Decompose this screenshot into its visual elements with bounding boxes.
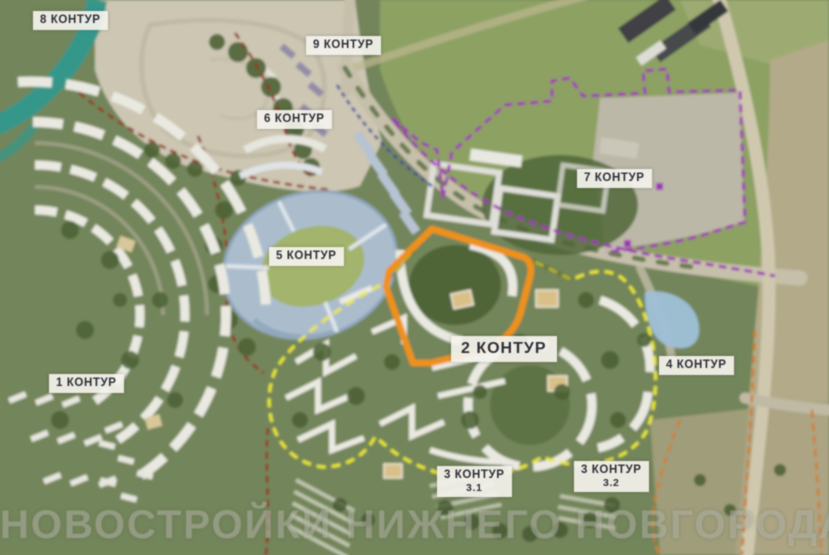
label-contour-9: 9 КОНТУР: [306, 36, 381, 55]
purple-marker: [656, 183, 663, 190]
label-contour-7: 7 КОНТУР: [577, 169, 652, 188]
label-contour-4: 4 КОНТУР: [659, 356, 734, 375]
label-contour-3-2-title: 3 КОНТУР: [581, 464, 642, 477]
label-contour-5: 5 КОНТУР: [269, 247, 344, 266]
label-contour-3-2: 3 КОНТУР 3.2: [574, 461, 649, 492]
masterplan-map: 8 КОНТУР 9 КОНТУР 6 КОНТУР 5 КОНТУР 7 КО…: [0, 0, 829, 555]
site-plan-artwork: [0, 0, 829, 555]
label-contour-3-1-title: 3 КОНТУР: [444, 469, 505, 482]
label-contour-3-2-sub: 3.2: [581, 477, 642, 489]
label-contour-1: 1 КОНТУР: [49, 374, 124, 393]
purple-marker: [624, 240, 631, 247]
label-contour-8: 8 КОНТУР: [33, 11, 108, 30]
label-contour-6: 6 КОНТУР: [257, 110, 332, 129]
label-contour-2: 2 КОНТУР: [451, 336, 557, 362]
label-contour-3-1: 3 КОНТУР 3.1: [437, 466, 512, 497]
label-contour-3-1-sub: 3.1: [444, 482, 505, 494]
